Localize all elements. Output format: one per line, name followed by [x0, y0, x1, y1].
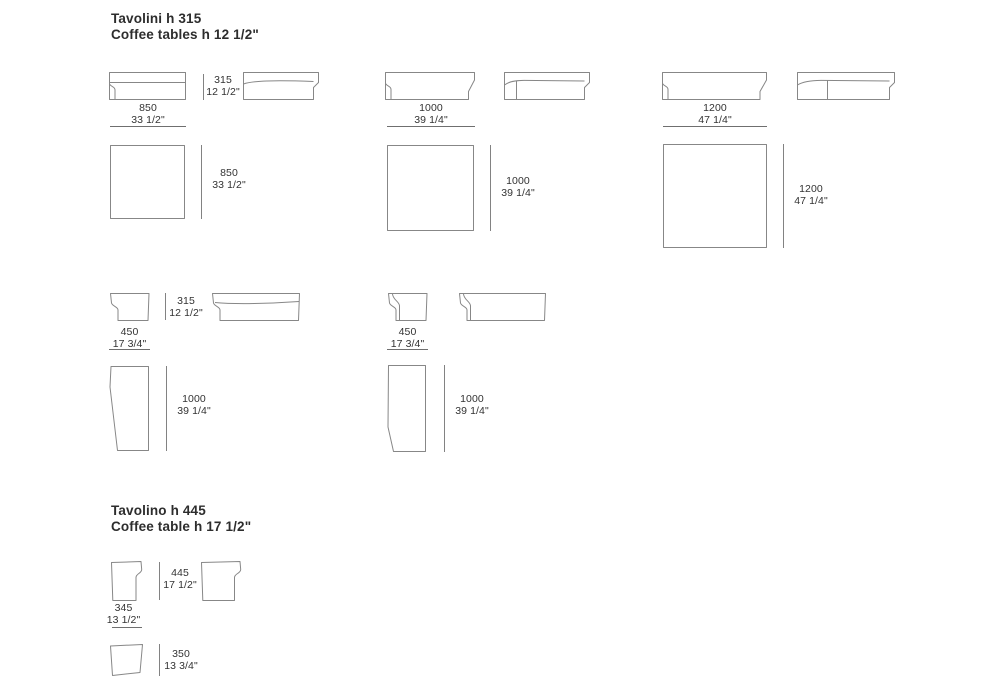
width-dim-line-345	[112, 627, 142, 628]
height-dim-label-315: 315 12 1/2"	[204, 75, 242, 98]
width-dim-label-345: 345 13 1/2"	[103, 603, 144, 626]
dim-in: 13 3/4"	[161, 661, 201, 673]
section-tavolini-title-it: Tavolini h 315	[111, 11, 259, 27]
plan-view-1200-drawing	[663, 144, 767, 248]
dim-mm: 850	[110, 103, 186, 115]
front-view-345-drawing	[111, 561, 142, 601]
dim-in: 12 1/2"	[167, 308, 205, 320]
depth-dim-label-350: 350 13 3/4"	[161, 649, 201, 672]
dim-mm: 350	[161, 649, 201, 661]
width-dim-label-1200: 1200 47 1/4"	[663, 103, 767, 126]
height-dim-label-315-rect: 315 12 1/2"	[167, 296, 205, 319]
section-tavolini-title-en: Coffee tables h 12 1/2"	[111, 27, 259, 43]
side-view-850-drawing	[243, 72, 319, 100]
dim-in: 47 1/4"	[663, 115, 767, 127]
dim-mm: 850	[207, 168, 251, 180]
width-dim-line-450-a	[109, 349, 150, 350]
dim-mm: 1200	[663, 103, 767, 115]
front-view-850-drawing	[109, 72, 186, 100]
height-dim-line-445	[159, 562, 160, 600]
front-view-450-a-drawing	[109, 293, 150, 321]
plan-view-850-drawing	[110, 145, 185, 219]
width-dim-label-1000: 1000 39 1/4"	[387, 103, 475, 126]
length-dim-line-1000-b	[444, 365, 445, 452]
width-dim-label-450-a: 450 17 3/4"	[109, 327, 150, 350]
dim-in: 33 1/2"	[110, 115, 186, 127]
plan-view-345-drawing	[110, 644, 143, 676]
dim-in: 13 1/2"	[103, 615, 144, 627]
width-dim-line-450-b	[387, 349, 428, 350]
length-dim-line-1000-a	[166, 366, 167, 451]
dim-in: 12 1/2"	[204, 87, 242, 99]
side-view-450-b-drawing	[458, 293, 546, 321]
plan-view-450-a-drawing	[109, 366, 149, 451]
length-dim-label-1000-b: 1000 39 1/4"	[450, 394, 494, 417]
dim-mm: 315	[167, 296, 205, 308]
dim-mm: 345	[103, 603, 144, 615]
dim-in: 39 1/4"	[496, 188, 540, 200]
length-dim-label-1000-a: 1000 39 1/4"	[172, 394, 216, 417]
dim-in: 39 1/4"	[387, 115, 475, 127]
width-dim-label-450-b: 450 17 3/4"	[387, 327, 428, 350]
dim-mm: 1000	[450, 394, 494, 406]
width-dim-line-1200	[663, 126, 767, 127]
dim-in: 47 1/4"	[789, 196, 833, 208]
depth-dim-line-1000	[490, 145, 491, 231]
dim-in: 39 1/4"	[450, 406, 494, 418]
height-dim-label-445: 445 17 1/2"	[161, 568, 199, 591]
section-tavolini-heading: Tavolini h 315 Coffee tables h 12 1/2"	[111, 11, 259, 43]
section-tavolino-title-it: Tavolino h 445	[111, 503, 251, 519]
dim-in: 33 1/2"	[207, 180, 251, 192]
dim-mm: 1000	[496, 176, 540, 188]
plan-view-1000-drawing	[387, 145, 474, 231]
front-view-450-b-drawing	[387, 293, 428, 321]
depth-dim-label-850: 850 33 1/2"	[207, 168, 251, 191]
side-view-345-drawing	[201, 561, 241, 601]
dim-mm: 445	[161, 568, 199, 580]
dim-mm: 1200	[789, 184, 833, 196]
front-view-1200-drawing	[662, 72, 767, 100]
depth-dim-label-1200: 1200 47 1/4"	[789, 184, 833, 207]
side-view-450-a-drawing	[211, 293, 300, 321]
depth-dim-line-350	[159, 644, 160, 676]
coffee-tables-spec-sheet: Tavolini h 315 Coffee tables h 12 1/2" 3…	[0, 0, 1000, 700]
width-dim-line-1000	[387, 126, 475, 127]
section-tavolino-heading: Tavolino h 445 Coffee table h 17 1/2"	[111, 503, 251, 535]
dim-in: 39 1/4"	[172, 406, 216, 418]
depth-dim-line-850	[201, 145, 202, 219]
depth-dim-label-1000: 1000 39 1/4"	[496, 176, 540, 199]
side-view-1000-drawing	[504, 72, 590, 100]
dim-mm: 315	[204, 75, 242, 87]
front-view-1000-drawing	[385, 72, 475, 100]
plan-view-450-b-drawing	[387, 365, 426, 452]
dim-mm: 1000	[172, 394, 216, 406]
depth-dim-line-1200	[783, 144, 784, 248]
dim-mm: 1000	[387, 103, 475, 115]
side-view-1200-drawing	[797, 72, 895, 100]
width-dim-line-850	[110, 126, 186, 127]
height-dim-line-315-rect	[165, 293, 166, 320]
dim-mm: 450	[387, 327, 428, 339]
dim-in: 17 1/2"	[161, 580, 199, 592]
section-tavolino-title-en: Coffee table h 17 1/2"	[111, 519, 251, 535]
dim-mm: 450	[109, 327, 150, 339]
width-dim-label-850: 850 33 1/2"	[110, 103, 186, 126]
